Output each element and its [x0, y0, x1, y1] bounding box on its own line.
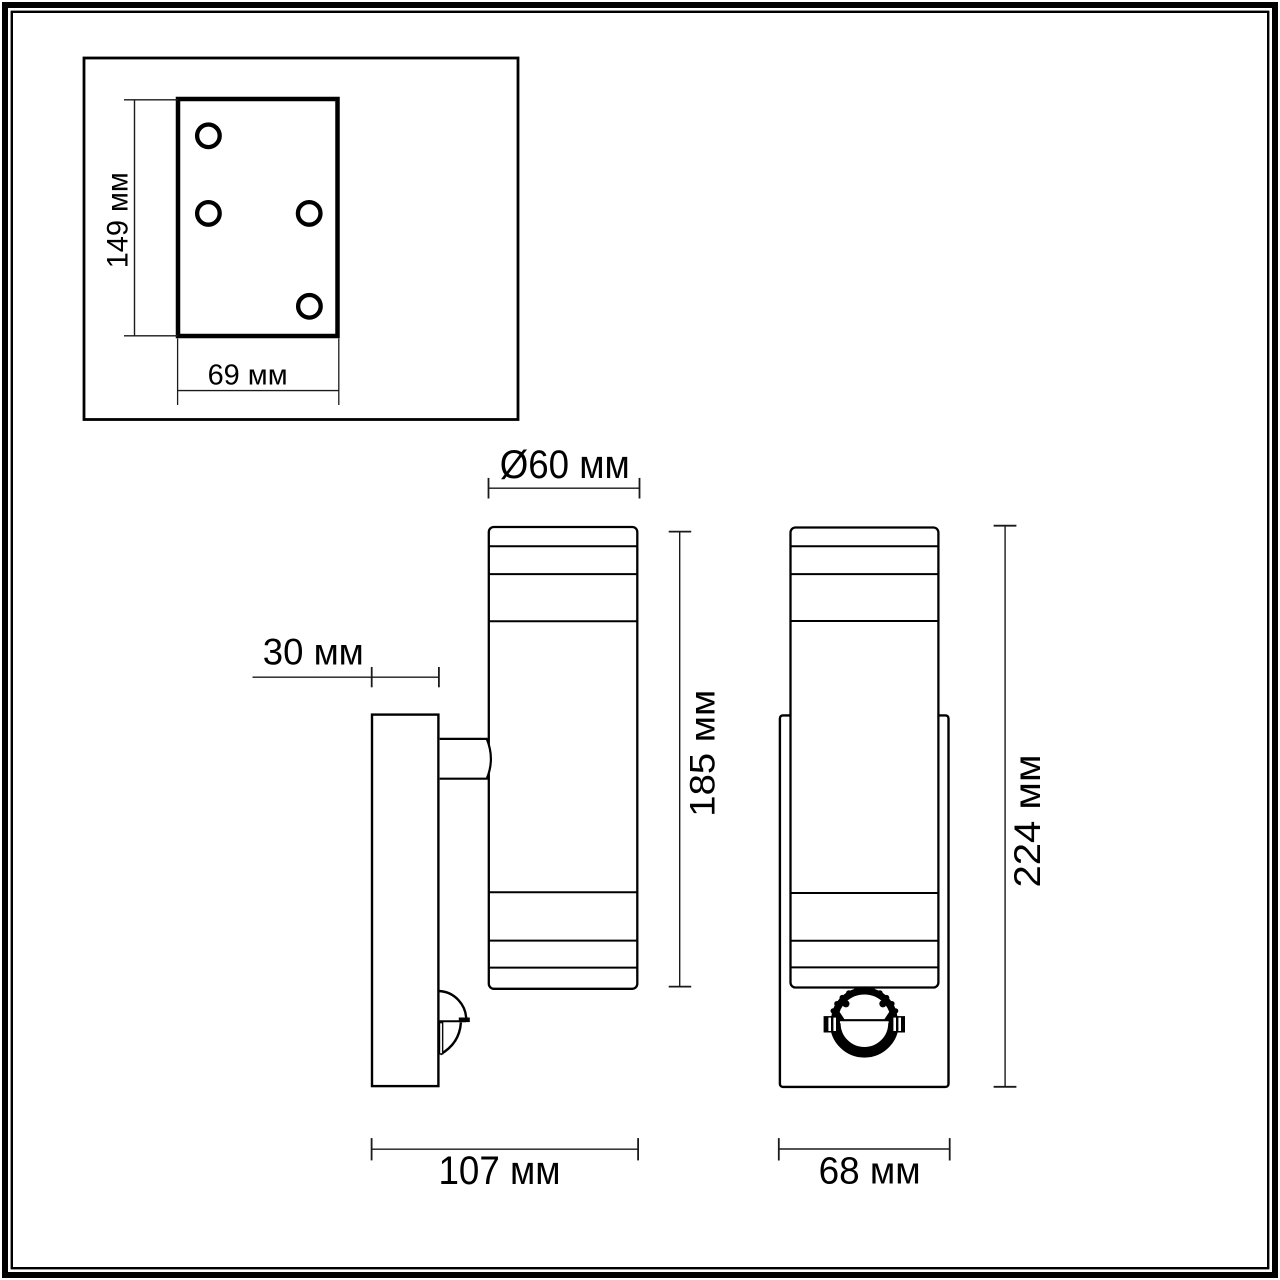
svg-text:30 мм: 30 мм [263, 631, 364, 672]
svg-text:Ø60 мм: Ø60 мм [500, 443, 630, 487]
svg-text:68 мм: 68 мм [819, 1151, 921, 1193]
svg-text:224 мм: 224 мм [1007, 755, 1048, 888]
svg-text:149 мм: 149 мм [102, 172, 135, 268]
svg-text:185 мм: 185 мм [683, 690, 723, 817]
svg-text:107 мм: 107 мм [439, 1149, 561, 1193]
svg-text:69 мм: 69 мм [208, 360, 288, 392]
